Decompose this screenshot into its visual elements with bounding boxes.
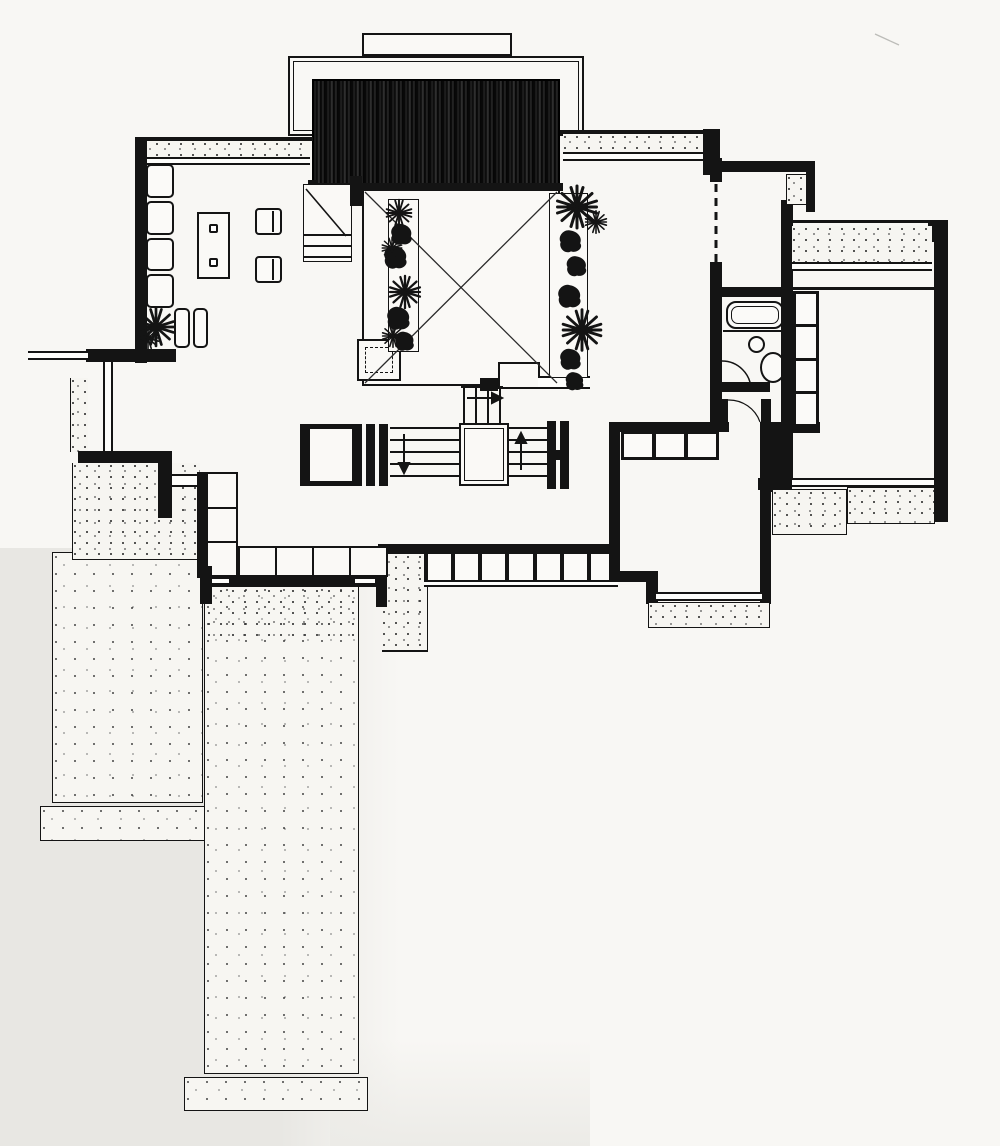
bedroom-west-wall	[609, 422, 620, 582]
upper-flight-tread-1	[463, 387, 465, 425]
ccell-1	[624, 434, 652, 457]
bedroom-closet-band	[621, 431, 719, 460]
bath-west-wall	[710, 262, 722, 422]
sofa-corner-section	[174, 308, 208, 348]
wing-east-wall	[934, 226, 948, 522]
courtyard-south-wall-a	[480, 378, 498, 391]
bcell-4	[351, 548, 386, 575]
upper-flight-edge	[461, 386, 503, 388]
west-wall-extension	[28, 351, 88, 360]
bench-west-wall	[197, 472, 206, 578]
courtyard-step-notch	[498, 362, 540, 389]
east-flight-edge-bottom	[509, 475, 547, 477]
bcell-1	[240, 548, 275, 575]
west-flight-tread-2	[390, 451, 460, 453]
north-window-right	[563, 152, 711, 161]
ccell-1	[796, 294, 816, 324]
hall-door-swing	[728, 400, 760, 422]
terrace-step-west	[40, 806, 208, 841]
entry-north-wall	[710, 161, 815, 172]
wing-terrace-step-2	[847, 487, 935, 524]
bathtub	[726, 301, 784, 329]
bench-south-wall	[206, 575, 378, 587]
ccell-3	[688, 434, 716, 457]
bath-divider	[723, 330, 783, 332]
west-flight-edge-bottom	[390, 475, 460, 477]
west-flight-edge-top	[390, 427, 460, 429]
cell-2	[455, 554, 478, 580]
lounge-chair-2	[255, 256, 282, 283]
west-flight-tread-1	[390, 439, 460, 441]
bcell-2	[208, 509, 236, 542]
bedroom-terrace-stipple	[648, 602, 770, 628]
floor-plan-canvas	[0, 0, 1000, 1146]
wing-terrace-step-1	[772, 489, 847, 535]
paper-shadow-bottom	[330, 1040, 590, 1146]
bcell-3	[314, 548, 349, 575]
stair-arrow-upper-right	[467, 393, 502, 403]
terrace-strip-south	[204, 585, 359, 1074]
wing-south-window	[792, 478, 934, 487]
cell-6	[564, 554, 587, 580]
south-wall-main	[378, 544, 618, 554]
cell-5	[537, 554, 560, 580]
terrace-left-narrow	[70, 378, 88, 452]
wing-inner-line	[792, 287, 937, 290]
window-terrace-left-detail	[168, 474, 200, 487]
bench-window-west	[211, 577, 229, 585]
terrace-block-west	[52, 552, 203, 803]
east-flight-tread-3	[509, 463, 547, 465]
west-wall-mid-upper	[86, 349, 176, 362]
sink	[748, 336, 765, 353]
bath-closet-column	[793, 291, 819, 427]
ccell-2	[656, 434, 684, 457]
east-flight-tread-1	[509, 439, 547, 441]
sofa-west-section	[146, 164, 174, 308]
ccell-4	[796, 394, 816, 424]
upper-flight-tread-3	[487, 387, 489, 425]
bench-window-east	[355, 577, 375, 585]
west-wall-stub-v	[158, 456, 172, 518]
west-flight-tread-3	[390, 463, 460, 465]
stair-west-rail-2	[379, 424, 388, 486]
table-knob-top	[209, 224, 218, 233]
table-knob-bottom	[209, 258, 218, 267]
trellis-screen	[312, 79, 560, 185]
cushion-3	[146, 238, 174, 272]
window-seat-west	[206, 472, 238, 578]
entry-tread-2	[304, 245, 351, 247]
west-window-vertical	[103, 362, 113, 454]
upper-flight-tread-4	[499, 387, 501, 425]
entry-vestibule	[303, 184, 352, 262]
planting-bed-west	[388, 199, 419, 352]
cushion-1	[174, 308, 190, 348]
wing-north-line	[790, 220, 940, 223]
entry-east-post	[806, 166, 815, 212]
bcell-1	[208, 474, 236, 507]
upper-flight-tread-2	[475, 387, 477, 425]
north-planting-band-right	[563, 134, 711, 152]
cushion-4	[146, 274, 174, 308]
stair-west-block-inner	[310, 429, 352, 481]
cushion-1	[146, 164, 174, 198]
terrace-post	[200, 566, 212, 604]
courtyard-north-post	[350, 176, 362, 206]
entry-tread-3	[304, 256, 351, 258]
cell-3	[482, 554, 505, 580]
wing-north-planting-band	[792, 226, 932, 262]
planter-strip-mid	[382, 554, 428, 652]
entry-tread-1	[304, 234, 351, 236]
east-flight-edge-top	[509, 427, 547, 429]
paper-scratch	[875, 34, 899, 45]
cushion-2	[193, 308, 209, 348]
planting-bed-east	[549, 193, 588, 378]
bcell-2	[277, 548, 312, 575]
stair-east-rail-tie	[547, 450, 569, 460]
bath-north-wall	[710, 287, 784, 297]
stair-landing	[459, 423, 509, 486]
bedroom-south-window	[656, 592, 762, 601]
cell-4	[509, 554, 532, 580]
bcell-3	[208, 543, 236, 576]
bath-south-wall	[718, 382, 770, 392]
east-flight-tread-2	[509, 451, 547, 453]
corridor-jamb-east	[761, 399, 771, 423]
terrace-step-south	[184, 1077, 368, 1111]
roof-step-upper	[362, 33, 512, 56]
cell-1	[428, 554, 451, 580]
bedroom-east-wall	[760, 422, 771, 604]
north-planting-band-left	[143, 141, 310, 157]
coffee-table	[197, 212, 230, 279]
ccell-2	[796, 327, 816, 357]
terrace-strip-top-stipple	[207, 588, 356, 640]
lounge-chair-1	[255, 208, 282, 235]
window-cell-band-sill	[424, 580, 618, 587]
wing-north-window	[792, 262, 932, 271]
stair-west-rail-1	[366, 424, 375, 486]
cushion-2	[146, 201, 174, 235]
window-cell-band	[424, 554, 618, 580]
ccell-3	[796, 361, 816, 391]
window-seat-south	[238, 546, 388, 577]
